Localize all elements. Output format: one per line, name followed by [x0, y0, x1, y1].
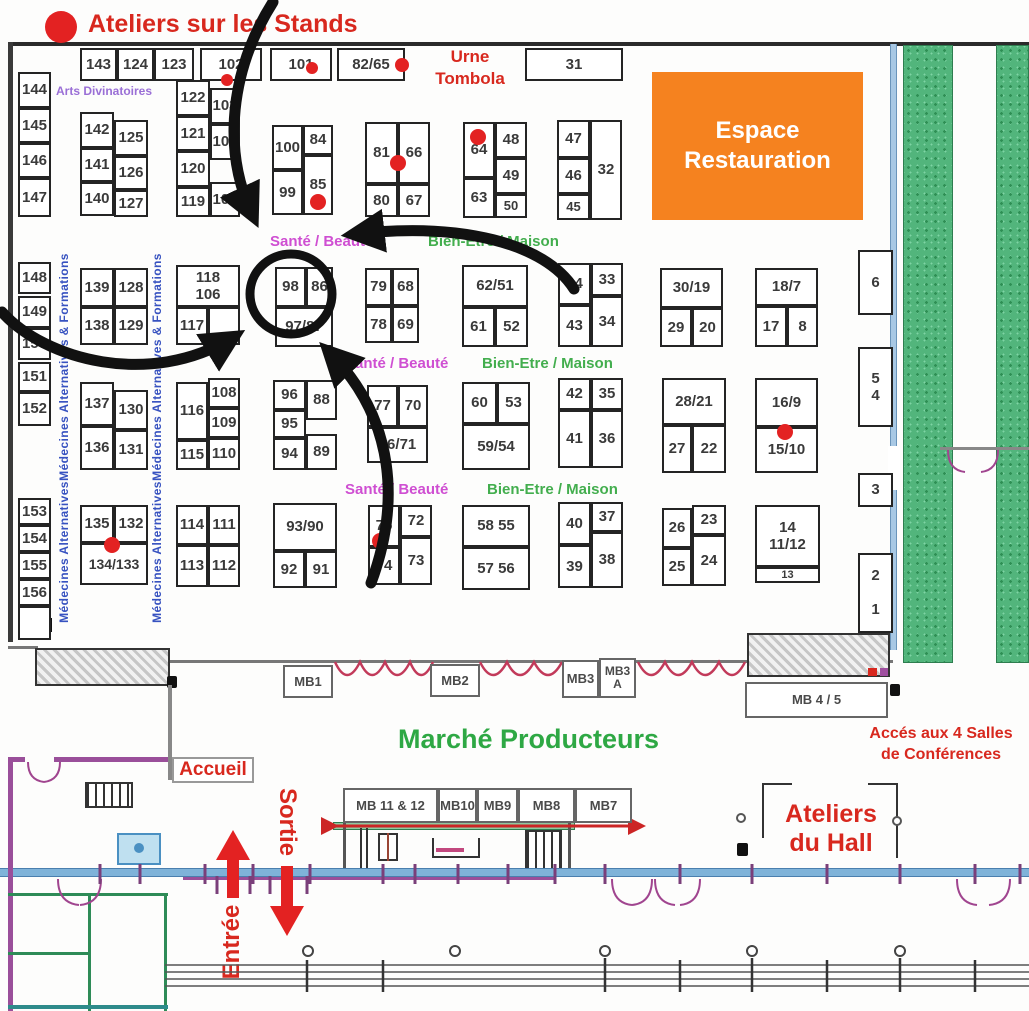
booth-148: 148: [18, 262, 51, 294]
booth-49: 49: [495, 158, 527, 194]
booth-98: 98: [275, 267, 306, 307]
mb-box-MB9: MB9: [477, 788, 518, 823]
booth-16-9: 16/9: [755, 378, 818, 427]
booth-105: 105: [210, 182, 240, 217]
wall-post-left: [343, 823, 346, 870]
booth-20: 20: [692, 308, 723, 347]
booth-72: 72: [400, 505, 432, 537]
asc-mark-2: [880, 668, 888, 676]
booth-104: 104: [210, 124, 240, 160]
booth-145: 145: [18, 108, 51, 143]
lock-icon-2: [890, 684, 900, 696]
booth-103: 103: [210, 88, 240, 124]
asc-mark: [868, 668, 877, 676]
booth-empty: [208, 307, 240, 345]
bl-wall-top-b: [54, 757, 170, 762]
booth-59-54: 59/54: [462, 424, 530, 470]
label-sant-beaut-: Santé / Beauté: [345, 355, 448, 372]
booth-132: 132: [114, 505, 148, 543]
booth-152: 152: [18, 392, 51, 426]
entree-label: Entrée: [218, 905, 246, 980]
booth-141: 141: [80, 148, 114, 182]
atelier-dot-9: [104, 537, 120, 553]
booth-138: 138: [80, 307, 114, 345]
booth-36: 36: [591, 410, 623, 468]
sortie-arrow-head: [270, 906, 304, 936]
booth-94: 94: [273, 438, 306, 470]
booth-43: 43: [558, 305, 591, 347]
booth-66: 66: [398, 122, 430, 184]
bl-lift-dot: [134, 843, 144, 853]
booth-61: 61: [462, 307, 495, 347]
mb-box-MB-4-5: MB 4 / 5: [745, 682, 888, 718]
booth-44: 44: [558, 263, 591, 305]
booth-122: 122: [176, 80, 210, 116]
booth-29: 29: [660, 308, 692, 347]
booth-48: 48: [495, 122, 527, 158]
booth-101: 101: [270, 48, 332, 81]
booth-70: 70: [398, 385, 428, 427]
booth-113: 113: [176, 545, 208, 587]
hall-lock-icon: [737, 843, 748, 856]
label-sant-beaut-: Santé / Beauté: [270, 233, 373, 250]
booth-144: 144: [18, 72, 51, 108]
label-bien-etre-maison: Bien-Etre / Maison: [428, 233, 559, 250]
bl-wall-left: [8, 757, 13, 1011]
booth-79: 79: [365, 268, 392, 306]
booth-125: 125: [114, 120, 148, 156]
booth-58-55: 58 55: [462, 505, 530, 547]
booth-42: 42: [558, 378, 591, 410]
booth-136: 136: [80, 426, 114, 470]
booth-137: 137: [80, 382, 114, 426]
booth-91: 91: [305, 551, 337, 588]
bl-room-line-h2: [8, 952, 90, 955]
bracket-left: [762, 783, 792, 838]
bl-room-line-v2: [164, 893, 167, 1011]
booth-117: 117: [176, 307, 208, 345]
mb-box-MB-11-12: MB 11 & 12: [343, 788, 438, 823]
booth-18-7: 18/7: [755, 268, 818, 306]
mb-box-MB10: MB10: [438, 788, 477, 823]
green-strip-outer: [996, 45, 1029, 663]
booth-93-90: 93/90: [273, 503, 337, 551]
acces-salles-label: Accés aux 4 Salles de Conférences: [855, 724, 1027, 766]
accueil-label: Accueil: [179, 759, 247, 781]
booth-73: 73: [400, 537, 432, 585]
mb-box-MB2: MB2: [430, 664, 480, 697]
booth-77: 77: [367, 385, 398, 427]
booth-60: 60: [462, 382, 497, 424]
mb-box-MB7: MB7: [575, 788, 632, 823]
booth-156: 156: [18, 579, 51, 606]
mb-box-MB8: MB8: [518, 788, 575, 823]
label-m-decines-alternatives-formations: Médecines Alternatives & Formations: [57, 253, 71, 481]
stage-left-wall: [8, 646, 38, 649]
corridor-wall-blue: [0, 868, 1029, 877]
booth-121: 121: [176, 116, 210, 151]
booth-123: 123: [154, 48, 194, 81]
booth-151: 151: [18, 362, 51, 392]
wall-post-right: [568, 823, 571, 870]
booth-149: 149: [18, 296, 51, 328]
booth-154: 154: [18, 525, 51, 552]
booth-24: 24: [692, 535, 726, 586]
booth-69: 69: [392, 306, 419, 343]
atelier-dot-3: [306, 62, 318, 74]
atelier-dot-1: [45, 11, 77, 43]
booth-126: 126: [114, 156, 148, 190]
booth-35: 35: [591, 378, 623, 410]
booth-84: 84: [303, 125, 333, 155]
label-m-decines-alternatives-formations: Médecines Alternatives & Formations: [150, 253, 164, 481]
booth-57-56: 57 56: [462, 547, 530, 590]
booth-23: 23: [692, 505, 726, 535]
booth-127: 127: [114, 190, 148, 217]
booth-100: 100: [272, 125, 303, 170]
booth-97-87: 97/87: [275, 307, 333, 347]
booth-130: 130: [114, 390, 148, 430]
booth-25: 25: [662, 548, 692, 586]
mb-box-MB3-A: MB3 A: [599, 658, 636, 698]
booth-53: 53: [497, 382, 530, 424]
booth-52: 52: [495, 307, 528, 347]
bl-wall-top-a: [8, 757, 25, 762]
booth-88: 88: [306, 380, 337, 420]
booth-39: 39: [558, 545, 591, 588]
label-sant-beaut-: Santé / Beauté: [345, 481, 448, 498]
mb-box-MB1: MB1: [283, 665, 333, 698]
accueil-box: Accueil: [172, 757, 254, 783]
booth-96: 96: [273, 380, 306, 410]
stage-left: [35, 648, 170, 686]
booth-140: 140: [80, 182, 114, 216]
hall-circle-left: [736, 813, 746, 823]
atelier-dot-4: [395, 58, 409, 72]
booth-41: 41: [558, 410, 591, 468]
mb-box-MB3: MB3: [562, 660, 599, 698]
atelier-dot-8: [777, 424, 793, 440]
espace-restauration: Espace Restauration: [652, 72, 863, 220]
sortie-arrow-shaft: [281, 866, 293, 908]
urne-tombola-label: Urne Tombola: [415, 46, 525, 90]
booth-13: 13: [755, 567, 820, 583]
label-bien-etre-maison: Bien-Etre / Maison: [482, 355, 613, 372]
atelier-dot-10: [372, 533, 388, 549]
booth-111: 111: [208, 505, 240, 545]
booth-139: 139: [80, 268, 114, 307]
booth-38: 38: [591, 532, 623, 588]
booth-142: 142: [80, 112, 114, 148]
booth-5-4: 5 4: [858, 347, 893, 427]
label-bien-etre-maison: Bien-Etre / Maison: [487, 481, 618, 498]
booth-110: 110: [208, 438, 240, 470]
small-booth-divider: [387, 833, 389, 861]
page-title: Ateliers sur les Stands: [88, 10, 358, 39]
booth-118-106: 118 106: [176, 265, 240, 307]
booth-62-51: 62/51: [462, 265, 528, 307]
post-line-1: [360, 828, 362, 870]
booth-95: 95: [273, 410, 306, 438]
table-accent: [436, 848, 464, 852]
booth-143: 143: [80, 48, 117, 81]
green-strip-inner: [903, 45, 953, 663]
label-m-decines-alternatives: Médecines Alternatives: [57, 481, 71, 623]
bl-wall-bottom: [8, 1005, 168, 1009]
booth-6: 6: [858, 250, 893, 315]
booth-108: 108: [208, 378, 240, 408]
label-m-decines-alternatives: Médecines Alternatives: [150, 481, 164, 623]
booth-116: 116: [176, 382, 208, 440]
booth-115: 115: [176, 440, 208, 470]
mb-green-bar: [333, 822, 575, 830]
booth-109: 109: [208, 408, 240, 438]
booth-2-1: 2 1: [858, 553, 893, 633]
stairs-mb8: [525, 830, 562, 872]
booth-50: 50: [495, 194, 527, 218]
entree-arrow-shaft: [227, 858, 239, 898]
booth-37: 37: [591, 502, 623, 532]
booth-30-19: 30/19: [660, 268, 723, 308]
booth-74: 74: [368, 547, 400, 585]
booth-40: 40: [558, 502, 591, 545]
booth-153: 153: [18, 498, 51, 525]
booth-8: 8: [787, 306, 818, 347]
bl-wall-inner: [168, 685, 172, 780]
atelier-dot-2: [221, 74, 233, 86]
booth-26: 26: [662, 508, 692, 548]
marche-producteurs-label: Marché Producteurs: [398, 724, 659, 755]
booth-114: 114: [176, 505, 208, 545]
booth-129: 129: [114, 307, 148, 345]
booth-81: 81: [365, 122, 398, 184]
floor-plan: Espace Restauration Ateliers sur les Sta…: [0, 0, 1029, 1011]
booth-27: 27: [662, 425, 692, 473]
booth-34: 34: [591, 296, 623, 347]
booth-45: 45: [557, 194, 590, 220]
bl-stairs: [85, 782, 133, 808]
booth-32: 32: [590, 120, 622, 220]
booth-89: 89: [306, 434, 337, 470]
booth-120: 120: [176, 151, 210, 187]
booth-128: 128: [114, 268, 148, 307]
booth-28-21: 28/21: [662, 378, 726, 425]
booth-112: 112: [208, 545, 240, 587]
hall-circle-right: [892, 816, 902, 826]
booth-78: 78: [365, 306, 392, 343]
booth-86: 86: [306, 267, 333, 307]
booth-150: 150: [18, 328, 51, 360]
post-line-2: [366, 828, 368, 870]
booth-47: 47: [557, 120, 590, 158]
booth-131: 131: [114, 430, 148, 470]
right-corridor-wall: [940, 447, 1029, 450]
booth-68: 68: [392, 268, 419, 306]
label-arts-divinatoires: Arts Divinatoires: [56, 84, 152, 98]
booth-67: 67: [398, 184, 430, 217]
booth-33: 33: [591, 263, 623, 296]
booth-155: 155: [18, 552, 51, 579]
booth-3: 3: [858, 473, 893, 507]
atelier-dot-5: [390, 155, 406, 171]
booth-empty: [18, 606, 51, 640]
booth-76-71: 76/71: [367, 427, 428, 463]
atelier-dot-6: [470, 129, 486, 145]
booth-22: 22: [692, 425, 726, 473]
espace-restauration-label: Espace Restauration: [684, 116, 831, 176]
booth-92: 92: [273, 551, 305, 588]
wall-left: [8, 42, 13, 642]
entree-arrow-head: [216, 830, 250, 860]
booth-46: 46: [557, 158, 590, 194]
booth-31: 31: [525, 48, 623, 81]
booth-146: 146: [18, 143, 51, 178]
atelier-dot-7: [310, 194, 326, 210]
booth-99: 99: [272, 170, 303, 215]
booth-63: 63: [463, 178, 495, 218]
booth-119: 119: [176, 187, 210, 217]
sortie-label: Sortie: [273, 788, 301, 856]
booth-17: 17: [755, 306, 787, 347]
booth-147: 147: [18, 178, 51, 217]
booth-14-11-12: 14 11/12: [755, 505, 820, 567]
booth-124: 124: [117, 48, 154, 81]
booth-80: 80: [365, 184, 398, 217]
